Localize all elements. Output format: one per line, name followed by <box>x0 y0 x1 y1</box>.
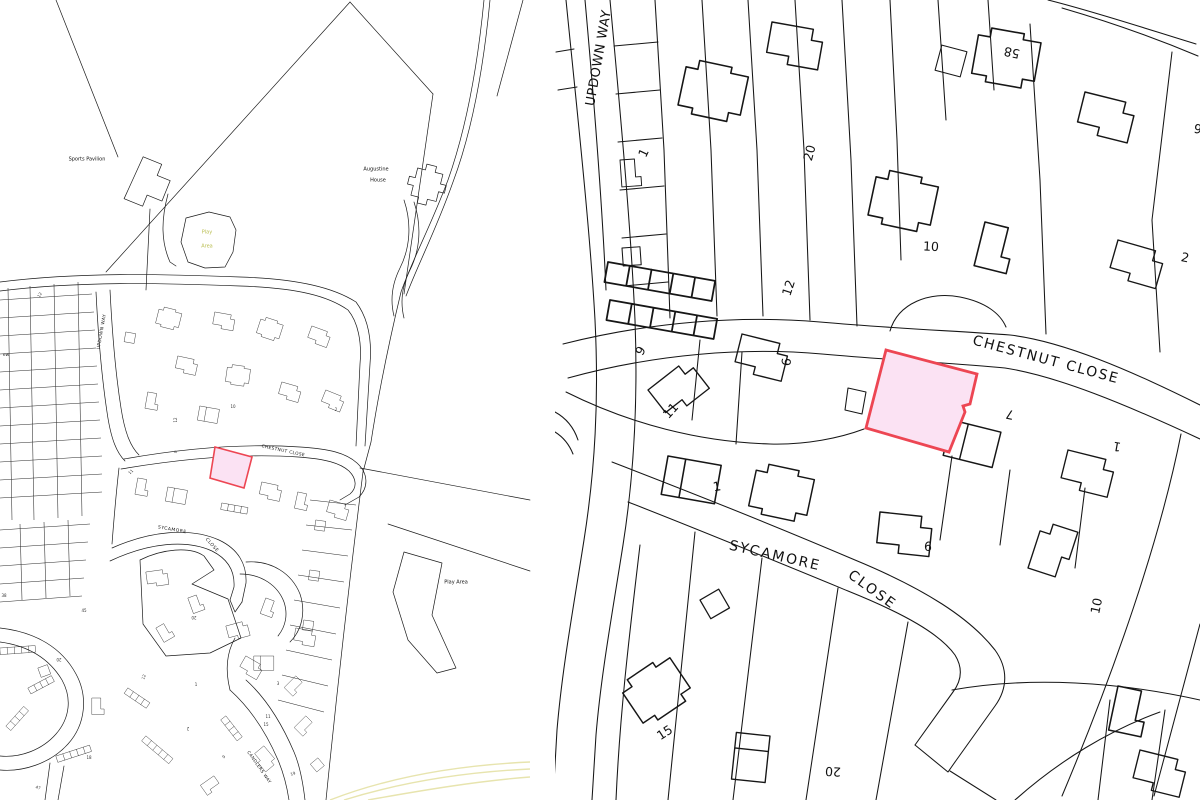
map-document: Sports PavilionAugustineHousePlayAreaPla… <box>0 0 1200 800</box>
play-area-north-outline <box>181 212 236 268</box>
augustine-house-building <box>404 161 451 209</box>
accent-road-yellow <box>330 762 530 800</box>
highlighted-plot-left <box>210 447 252 488</box>
sports-pavilion-building <box>124 156 175 212</box>
house-outlines <box>0 306 350 795</box>
right-map-panel <box>555 0 1200 800</box>
highlighted-plot-right <box>866 350 977 452</box>
field-boundaries <box>56 0 530 800</box>
left-map-panel <box>0 0 535 800</box>
estate-roads <box>0 275 370 800</box>
play-area-east-outline <box>393 552 456 673</box>
landmark-buildings <box>124 156 456 673</box>
